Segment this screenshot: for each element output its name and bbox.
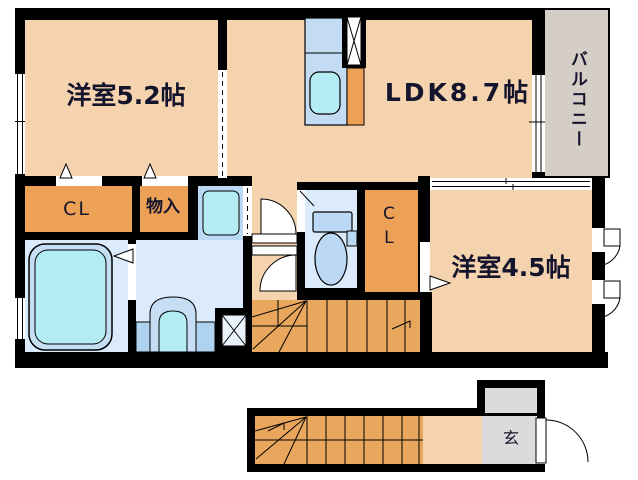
washbasin <box>136 297 215 352</box>
stair-treads-upper <box>252 300 410 352</box>
stair-treads-lower <box>255 416 423 464</box>
label-room-5-2: 洋室5.2帖 <box>66 83 185 109</box>
entrance-door <box>536 418 588 463</box>
label-closet-middle: CL <box>379 204 397 252</box>
bathtub <box>29 244 112 350</box>
window-room45-right-2 <box>592 280 620 318</box>
closet-middle-door-arrow <box>430 276 450 290</box>
label-room-4-5: 洋室4.5帖 <box>451 255 570 281</box>
pipe-shaft <box>222 315 246 346</box>
closet-left-door-arrow <box>60 164 72 178</box>
toilet-door-swing <box>300 191 314 206</box>
label-closet-left: CL <box>63 200 91 220</box>
washing-machine-pan-inner <box>203 191 239 235</box>
window-room45-top <box>430 178 592 190</box>
label-ldk: LDK8.7帖 <box>385 80 531 106</box>
hall-door-upper <box>252 199 297 243</box>
kitchen-sink <box>310 72 340 114</box>
bath-door-arrow <box>114 249 133 263</box>
sliding-door-52-ldk <box>218 70 227 178</box>
label-storage: 物入 <box>146 199 180 217</box>
toilet <box>313 212 357 285</box>
window-bath-left <box>15 297 25 340</box>
window-ldk-balcony <box>529 75 545 172</box>
window-room52-left <box>15 73 25 175</box>
storage-door-arrow <box>144 164 156 178</box>
floor-plan: 洋室5.2帖 LDK8.7帖 バルコニー CL 物入 CL 洋室4.5帖 玄 <box>0 0 638 480</box>
sliding-door-washroom <box>243 186 252 236</box>
label-balcony: バルコニー <box>567 50 585 150</box>
kitchen-range <box>347 68 364 125</box>
floorplan-linework <box>0 0 638 480</box>
window-room45-right-1 <box>592 228 620 266</box>
label-entrance: 玄 <box>503 431 519 448</box>
hall-door-lower <box>252 246 297 291</box>
duct-shaft <box>342 14 366 68</box>
